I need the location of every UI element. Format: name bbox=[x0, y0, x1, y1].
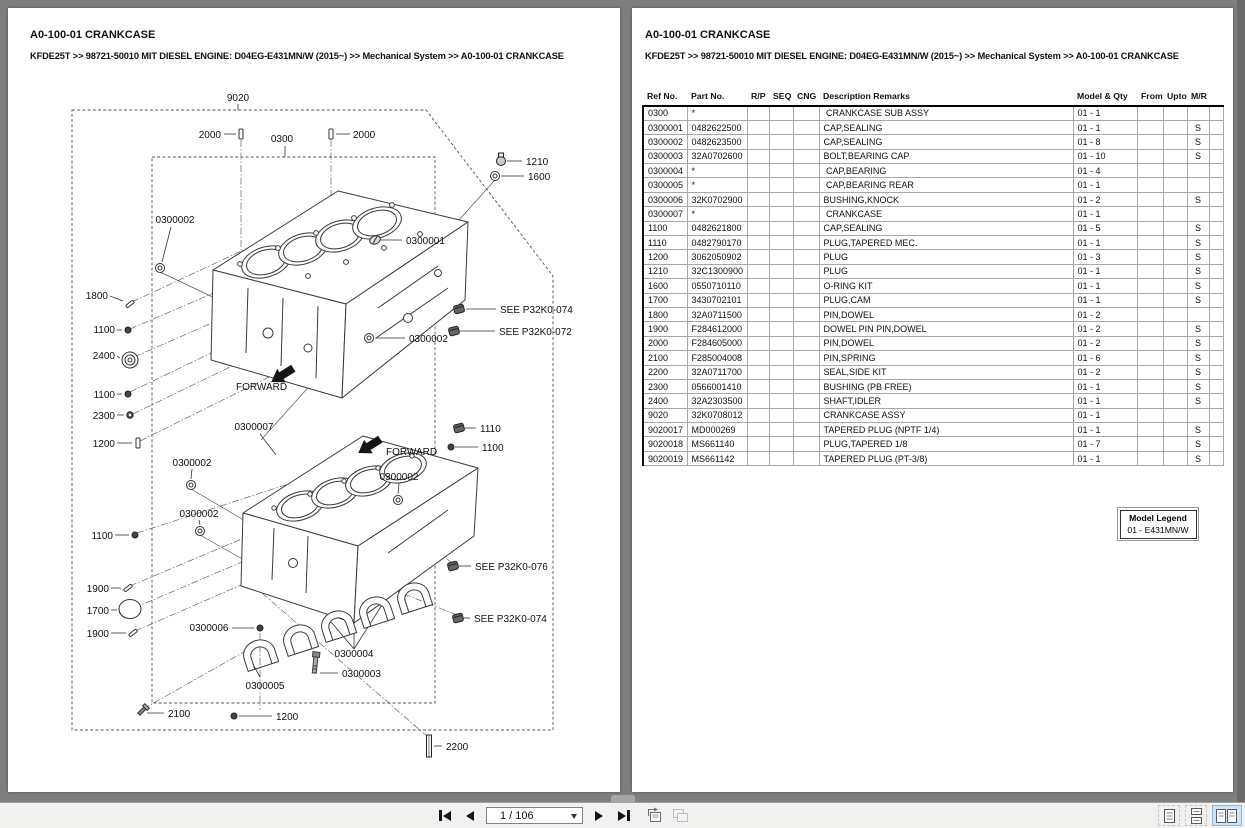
dot-part-glyph bbox=[231, 713, 237, 719]
page-title: A0-100-01 CRANKCASE bbox=[30, 29, 155, 41]
callout-label: 0300002 bbox=[409, 334, 448, 345]
plug-part-glyph bbox=[448, 326, 460, 336]
diagram-callout: 1100 bbox=[93, 325, 131, 336]
table-row: 180032A0711500PIN,DOWEL01 - 2 bbox=[643, 307, 1223, 321]
bearing-caps bbox=[240, 579, 433, 673]
parts-table-header-row: Ref No.Part No.R/PSEQCNGDescription Rema… bbox=[643, 91, 1223, 106]
diagram-callout: 2300 bbox=[93, 411, 133, 422]
pin-part-glyph bbox=[239, 129, 243, 139]
single-page-view-button[interactable] bbox=[1158, 805, 1180, 826]
pin-part-glyph bbox=[136, 438, 140, 448]
table-row: 240032A2303500SHAFT,IDLER01 - 1S bbox=[643, 394, 1223, 408]
callout-label: 1210 bbox=[526, 157, 549, 168]
callout-label: 0300007 bbox=[235, 422, 274, 433]
diagram-callout: 1600 bbox=[491, 172, 551, 184]
crankcase-block-upper bbox=[211, 191, 468, 398]
diagram-callout: 1100 bbox=[91, 531, 138, 542]
pdf-viewer-canvas: A0-100-01 CRANKCASE KFDE25T >> 98721-500… bbox=[0, 0, 1245, 802]
dot-part-glyph bbox=[448, 444, 454, 450]
model-legend-title: Model Legend bbox=[1121, 513, 1196, 523]
callout-label: 0300 bbox=[271, 134, 294, 145]
diagram-callout: 0300001 bbox=[368, 234, 445, 247]
plugcircle-part-glyph bbox=[497, 153, 506, 166]
diagram-callout: 1110 bbox=[453, 423, 501, 435]
first-page-icon bbox=[439, 810, 442, 821]
next-page-button[interactable] bbox=[590, 806, 608, 825]
callout-label: 0300002 bbox=[173, 458, 212, 469]
callout-label: 0300002 bbox=[156, 215, 195, 226]
callout-label: 2000 bbox=[353, 130, 376, 141]
callout-label: 1800 bbox=[86, 291, 109, 302]
last-page-button[interactable] bbox=[615, 806, 633, 825]
callout-label: SEE P32K0-076 bbox=[475, 562, 548, 573]
callout-label: 1900 bbox=[87, 584, 110, 595]
table-row: 9020019MS661142TAPERED PLUG (PT-3/8)01 -… bbox=[643, 451, 1223, 465]
ring-part-glyph bbox=[187, 481, 196, 490]
callout-label: 1100 bbox=[93, 390, 115, 401]
next-view-button[interactable] bbox=[671, 806, 689, 825]
page-right-parts-list: A0-100-01 CRANKCASE KFDE25T >> 98721-500… bbox=[632, 8, 1233, 792]
diagram-callout: FORWARD bbox=[236, 361, 298, 393]
screw-part-glyph bbox=[137, 704, 150, 717]
callout-label: 0300002 bbox=[380, 472, 419, 483]
table-row: 902032K0708012CRANKCASE ASSY01 - 1 bbox=[643, 408, 1223, 422]
diagram-callout: 0300002 bbox=[156, 215, 195, 273]
idler-part-glyph bbox=[122, 352, 138, 368]
two-page-view-icon bbox=[1215, 808, 1239, 824]
callout-label: 1200 bbox=[93, 439, 116, 450]
callout-label: SEE P32K0-072 bbox=[499, 327, 572, 338]
table-row: 121032C1300900PLUG01 - 1S bbox=[643, 264, 1223, 278]
table-row: 220032A0711700SEAL,SIDE KIT01 - 2S bbox=[643, 365, 1223, 379]
diagram-callout: 2100 bbox=[137, 704, 191, 720]
ring-part-glyph bbox=[365, 334, 374, 343]
page-number-combobox[interactable]: 1 / 106 bbox=[486, 807, 583, 824]
pinangled-part-glyph bbox=[129, 629, 138, 637]
diagram-callout: SEE P32K0-074 bbox=[452, 613, 547, 625]
diagram-callout: 1700 bbox=[87, 600, 141, 619]
callout-label: 1100 bbox=[91, 531, 113, 542]
callout-label: SEE P32K0-074 bbox=[474, 614, 547, 625]
diagram-callout: 0300007 bbox=[235, 422, 276, 455]
pinangled-part-glyph bbox=[124, 584, 133, 592]
diagram-callout: 1200 bbox=[231, 712, 299, 723]
barv-part-glyph bbox=[427, 735, 432, 757]
callout-label: 2200 bbox=[446, 742, 469, 753]
chevron-down-icon bbox=[571, 814, 577, 819]
diagram-callout: 1900 bbox=[87, 584, 133, 595]
callout-label: FORWARD bbox=[386, 447, 437, 458]
last-page-icon bbox=[618, 811, 626, 821]
diagram-callout: 0300005 bbox=[246, 666, 285, 692]
diagram-callouts: 9020200003002000121016000300002030000118… bbox=[86, 93, 574, 757]
diagram-callout: FORWARD bbox=[354, 432, 437, 459]
previous-page-icon bbox=[466, 811, 474, 821]
callout-label: 1700 bbox=[87, 606, 110, 617]
callout-label: SEE P32K0-074 bbox=[500, 305, 573, 316]
previous-page-button[interactable] bbox=[461, 806, 479, 825]
table-row: 2100F285004008PIN,SPRING01 - 6S bbox=[643, 351, 1223, 365]
callout-label: 0300006 bbox=[190, 623, 229, 634]
diagram-callout: 9020 bbox=[227, 93, 250, 110]
table-row: 0300* CRANKCASE SUB ASSY01 - 1 bbox=[643, 106, 1223, 120]
callout-label: 1200 bbox=[276, 712, 299, 723]
diagram-callout: 0300002 bbox=[173, 458, 212, 490]
pin-part-glyph bbox=[329, 129, 333, 139]
callout-label: 2100 bbox=[168, 709, 191, 720]
cap-part-glyph bbox=[368, 234, 381, 245]
bearing-cap-bolt bbox=[311, 652, 320, 674]
ring-part-glyph bbox=[196, 527, 205, 536]
diagram-callout: 1100 bbox=[93, 390, 131, 401]
two-page-view-button[interactable] bbox=[1212, 805, 1242, 826]
callout-label: 0300004 bbox=[335, 649, 374, 660]
inner-assembly-box bbox=[152, 157, 435, 703]
diagram-callout: SEE P32K0-072 bbox=[448, 326, 572, 338]
diagram-callout: 1100 bbox=[448, 443, 504, 454]
callout-label: 0300003 bbox=[342, 669, 381, 680]
table-row: 030000332A0702600BOLT,BEARING CAP01 - 10… bbox=[643, 149, 1223, 163]
callout-label: 1100 bbox=[482, 443, 504, 454]
construction-lines bbox=[130, 140, 495, 737]
page-title: A0-100-01 CRANKCASE bbox=[645, 29, 770, 41]
ring-part-glyph bbox=[394, 496, 403, 505]
plug-part-glyph bbox=[452, 613, 464, 623]
pinangled-part-glyph bbox=[126, 300, 135, 308]
single-page-view-icon bbox=[1163, 808, 1176, 824]
table-row: 9020017MD000269TAPERED PLUG (NPTF 1/4)01… bbox=[643, 423, 1223, 437]
next-page-icon bbox=[595, 811, 603, 821]
table-row: 11000482621800CAP,SEALING01 - 5S bbox=[643, 221, 1223, 235]
page-indicator: 1 / 106 bbox=[487, 810, 534, 822]
table-row: 12003062050902PLUG01 - 3S bbox=[643, 250, 1223, 264]
table-row: 0300004* CAP,BEARING01 - 4 bbox=[643, 164, 1223, 178]
breadcrumb: KFDE25T >> 98721-50010 MIT DIESEL ENGINE… bbox=[30, 51, 564, 61]
dot-part-glyph bbox=[257, 625, 263, 631]
table-row: 23000566001410BUSHING (PB FREE)01 - 1S bbox=[643, 379, 1223, 393]
plug-part-glyph bbox=[453, 423, 465, 433]
callout-label: 1110 bbox=[480, 424, 501, 435]
diagram-callout: 0300 bbox=[271, 134, 294, 157]
callout-label: 2000 bbox=[199, 130, 222, 141]
diagram-callout: 0300003 bbox=[320, 669, 381, 680]
parts-table: Ref No.Part No.R/PSEQCNGDescription Rema… bbox=[642, 91, 1224, 466]
table-row: 17003430702101PLUG,CAM01 - 1S bbox=[643, 293, 1223, 307]
table-row: 03000020482623500CAP,SEALING01 - 8S bbox=[643, 135, 1223, 149]
callout-label: 0300005 bbox=[246, 681, 285, 692]
table-row: 03000010482622500CAP,SEALING01 - 1S bbox=[643, 120, 1223, 134]
diagram-callout: SEE P32K0-074 bbox=[453, 304, 573, 316]
diagram-callout: 2400 bbox=[93, 351, 138, 368]
outer-assembly-box bbox=[72, 110, 553, 730]
model-legend-entry: 01 - E431MN/W bbox=[1121, 525, 1196, 535]
dot-part-glyph bbox=[125, 391, 131, 397]
callout-label: 0300001 bbox=[406, 236, 445, 247]
next-view-icon bbox=[671, 807, 689, 824]
crankcase-block-lower bbox=[241, 436, 478, 623]
diagram-callout: 2000 bbox=[199, 129, 243, 141]
page-left-diagram: A0-100-01 CRANKCASE KFDE25T >> 98721-500… bbox=[8, 8, 620, 792]
diagram-callout: 2000 bbox=[329, 129, 376, 141]
table-row: 0300005* CAP,BEARING REAR01 - 1 bbox=[643, 178, 1223, 192]
diagram-callout: 0300006 bbox=[190, 623, 263, 634]
table-row: 16000550710110O-RING KIT01 - 1S bbox=[643, 279, 1223, 293]
continuous-view-icon bbox=[1190, 808, 1203, 824]
callout-label: 0300002 bbox=[180, 509, 219, 520]
diagram-callout: 1800 bbox=[86, 291, 135, 308]
continuous-view-button[interactable] bbox=[1185, 805, 1207, 826]
diagram-callout: 1200 bbox=[93, 438, 140, 450]
dot-part-glyph bbox=[132, 532, 138, 538]
bigcyl-part-glyph bbox=[119, 600, 141, 619]
ring-part-glyph bbox=[156, 264, 165, 273]
table-row: 11100482790170PLUG,TAPERED MEC.01 - 1S bbox=[643, 236, 1223, 250]
diagram-callout: SEE P32K0-076 bbox=[447, 561, 548, 573]
first-page-button[interactable] bbox=[436, 806, 454, 825]
callout-label: 1600 bbox=[528, 172, 551, 183]
callout-label: 1100 bbox=[93, 325, 115, 336]
parts-table-body: 0300* CRANKCASE SUB ASSY01 - 10300001048… bbox=[643, 106, 1223, 466]
callout-label: 2300 bbox=[93, 411, 116, 422]
table-row: 0300007* CRANKCASE01 - 1 bbox=[643, 207, 1223, 221]
previous-view-icon bbox=[646, 807, 664, 824]
crankcase-exploded-diagram: 9020200003002000121016000300002030000118… bbox=[8, 8, 620, 792]
arrow-part-glyph bbox=[354, 432, 385, 459]
diagram-callout: 0300004 bbox=[335, 649, 374, 660]
diagram-callout: 0300002 bbox=[380, 472, 419, 505]
breadcrumb: KFDE25T >> 98721-50010 MIT DIESEL ENGINE… bbox=[645, 51, 1179, 61]
arrow-part-glyph bbox=[267, 361, 298, 388]
callout-label: 2400 bbox=[93, 351, 116, 362]
dot2-part-glyph bbox=[127, 412, 133, 418]
plug-part-glyph bbox=[447, 561, 459, 571]
table-row: 1900F284612000DOWEL PIN PIN,DOWEL01 - 2S bbox=[643, 322, 1223, 336]
table-row: 9020018MS661140PLUG,TAPERED 1/801 - 7S bbox=[643, 437, 1223, 451]
ring-part-glyph bbox=[491, 172, 500, 181]
diagram-callout: 0300002 bbox=[365, 334, 449, 346]
previous-view-button[interactable] bbox=[646, 806, 664, 825]
diagram-callout: 2200 bbox=[427, 735, 469, 757]
model-legend-box: Model Legend 01 - E431MN/W bbox=[1117, 507, 1199, 541]
viewer-toolbar: 1 / 106 bbox=[0, 802, 1245, 828]
diagram-callout: 1210 bbox=[497, 153, 549, 168]
table-row: 2000F284605000PIN,DOWEL01 - 2S bbox=[643, 336, 1223, 350]
window-edge-strip bbox=[1237, 0, 1245, 802]
diagram-callout: 1900 bbox=[87, 629, 138, 640]
callout-label: 1900 bbox=[87, 629, 110, 640]
toolbar-collapse-handle[interactable] bbox=[611, 795, 635, 803]
callout-label: FORWARD bbox=[236, 382, 287, 393]
diagram-callout: 0300002 bbox=[180, 509, 219, 536]
table-row: 030000632K0702900BUSHING,KNOCK01 - 2S bbox=[643, 192, 1223, 206]
dot-part-glyph bbox=[125, 327, 131, 333]
callout-label: 9020 bbox=[227, 93, 250, 104]
plug-part-glyph bbox=[453, 304, 465, 314]
